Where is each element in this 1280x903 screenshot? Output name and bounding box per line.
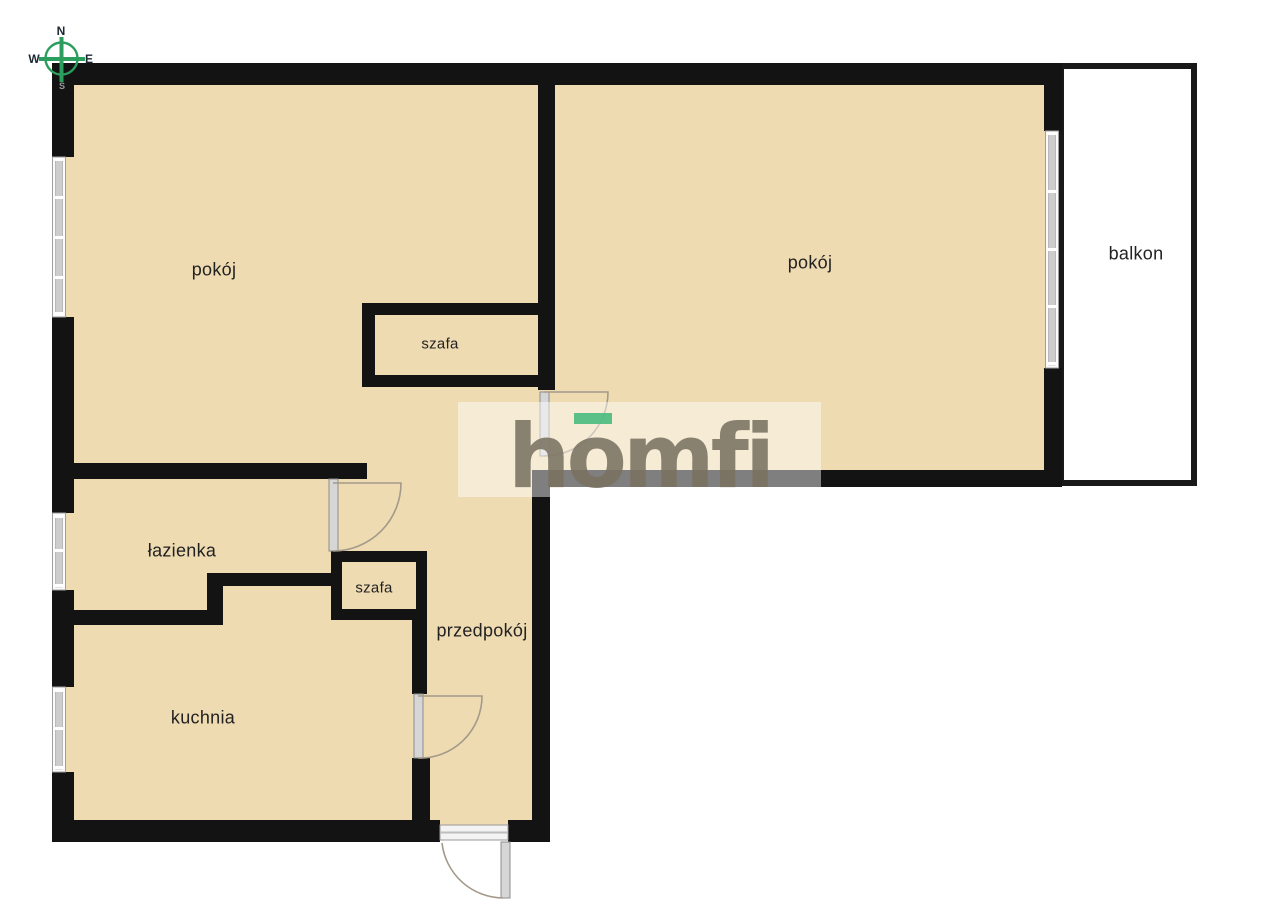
door-leaf-bathroom [329,479,338,551]
room-label-pokoj-right: pokój [788,253,833,274]
wall-bathroom-bottom-left [52,610,222,625]
wall-hall-right [532,470,550,842]
room-label-kuchnia: kuchnia [171,708,235,729]
compass-label-south: S [59,81,65,91]
wall-left-seg2 [52,317,74,513]
window-right-room [1046,131,1059,368]
window-left-room [53,157,66,317]
wall-right-seg2 [1044,368,1062,487]
homfi-watermark: homfi [458,402,821,497]
room-label-balkon: balkon [1109,244,1164,265]
wall-top [52,63,1062,85]
room-label-pokoj-left: pokój [192,260,237,281]
homfi-logo-accent-bar [574,413,612,424]
room-label-szafa-small: szafa [355,580,392,597]
room-label-przedpokoj: przedpokój [436,621,527,642]
door-leaf-kitchen [414,694,423,758]
wall-bottom-seg1 [52,820,440,842]
window-kitchen [53,687,66,772]
homfi-logo-text: homfi [508,413,771,501]
room-label-lazienka: łazienka [148,541,216,562]
floor-plan-page: pokój pokój szafa łazienka szafa przedpo… [0,0,1280,903]
wall-kitchen-upper [412,618,427,694]
compass-label-north: N [57,24,66,38]
entrance-threshold [440,825,508,840]
compass-label-east: E [85,52,93,66]
window-bathroom [53,513,66,590]
compass-label-west: W [28,52,39,66]
wall-left-seg3 [52,590,74,687]
balcony [1061,66,1194,483]
wall-bathroom-top [52,463,367,479]
wall-bathroom-bottom-right [207,573,333,586]
room-label-szafa-top: szafa [421,336,458,353]
wall-kitchen-lower [412,758,430,820]
door-swing-entrance [442,843,503,898]
wall-right-seg1 [1044,63,1062,131]
door-leaf-entrance [501,842,510,898]
